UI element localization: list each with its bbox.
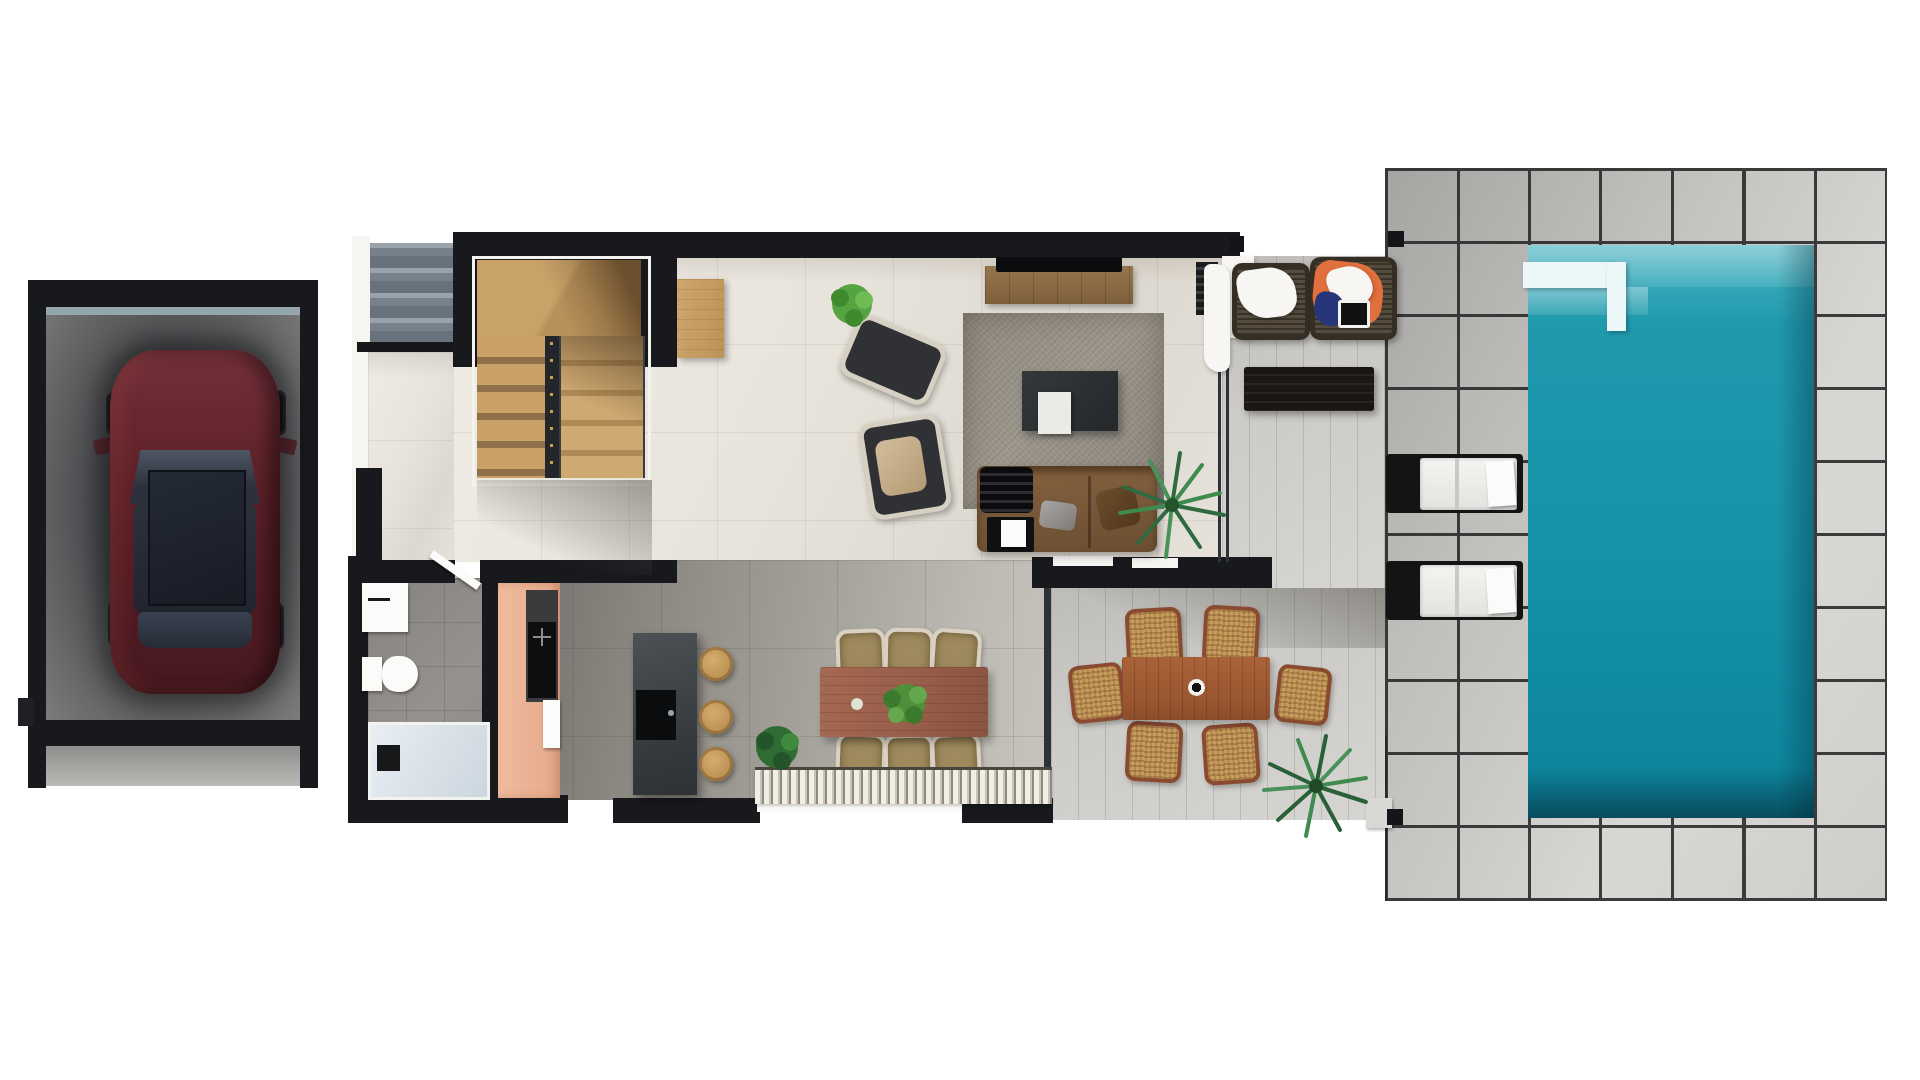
cooktop-control-2 bbox=[541, 628, 543, 646]
dining-table-sprig bbox=[851, 698, 863, 710]
palm-plant-deck bbox=[1256, 726, 1376, 846]
bar-stool-1 bbox=[699, 647, 733, 681]
pergola-post-2 bbox=[1388, 231, 1404, 247]
floor-plan-canvas bbox=[0, 0, 1920, 1080]
house-top-wall bbox=[453, 232, 1240, 258]
table-bowl bbox=[1188, 679, 1205, 696]
oak-sideboard bbox=[677, 279, 724, 358]
pergola-post-3 bbox=[1387, 809, 1403, 825]
bar-stool-3 bbox=[699, 747, 733, 781]
stair-flight-lower bbox=[559, 336, 645, 478]
shower-drain bbox=[377, 745, 400, 771]
swimming-pool bbox=[1528, 245, 1814, 818]
outdoor-chair-5 bbox=[1124, 721, 1183, 784]
pool-entry-step-horizontal bbox=[1523, 262, 1613, 288]
pool-shadow-bottom bbox=[1528, 768, 1814, 818]
outdoor-chair-4 bbox=[1273, 663, 1333, 726]
fridge bbox=[543, 700, 560, 748]
coffee-table-tray bbox=[1038, 392, 1071, 434]
sofa-black-throw bbox=[980, 467, 1033, 513]
car bbox=[108, 350, 282, 696]
garage-door-transom bbox=[46, 307, 302, 315]
stair-floor-shadow bbox=[477, 480, 652, 575]
stair-flight-upper bbox=[477, 336, 545, 478]
dining-table-plant bbox=[878, 675, 934, 731]
toilet-tank bbox=[362, 657, 382, 691]
car-rear-window bbox=[138, 612, 252, 648]
hall-stub-wall bbox=[356, 468, 382, 562]
slatted-coffee-table bbox=[1244, 367, 1374, 411]
pergola-post-1 bbox=[1229, 236, 1244, 252]
plant-near-stairs bbox=[824, 276, 880, 332]
tv bbox=[996, 257, 1122, 272]
outdoor-chair-6 bbox=[1201, 722, 1261, 786]
wall-cap-1 bbox=[1053, 556, 1113, 566]
sun-lounger-2-towel bbox=[1485, 567, 1516, 614]
lounge-chair-2-bag bbox=[1338, 300, 1370, 328]
outdoor-chair-3 bbox=[1067, 661, 1127, 724]
bar-stool-2 bbox=[699, 700, 733, 734]
utility-box bbox=[18, 698, 34, 726]
armchair-2-blanket bbox=[874, 435, 928, 498]
pool-shelf-corner bbox=[1528, 287, 1648, 315]
white-hanging-towel bbox=[1204, 264, 1230, 372]
stair-landing bbox=[477, 260, 641, 336]
bathroom-vanity bbox=[362, 583, 408, 632]
vanity-faucet bbox=[368, 598, 390, 601]
pool-shadow-right bbox=[1778, 245, 1814, 818]
stair-center-divider bbox=[545, 336, 559, 478]
palm-plant-living bbox=[1112, 445, 1232, 565]
bottom-wall-kitchen bbox=[613, 798, 760, 823]
sofa-seam bbox=[1088, 476, 1091, 548]
sun-lounger-1-hinge bbox=[1455, 458, 1459, 510]
garage-right-wall bbox=[300, 280, 318, 788]
toilet-bowl bbox=[382, 656, 418, 692]
pool-entry-step-vertical bbox=[1607, 262, 1626, 331]
garage-door bbox=[46, 720, 300, 746]
sun-lounger-1-towel bbox=[1485, 460, 1516, 507]
driveway-apron bbox=[46, 746, 300, 786]
car-sunroof bbox=[148, 470, 246, 606]
plant-near-dining bbox=[748, 718, 806, 776]
side-table-device bbox=[1001, 520, 1026, 547]
garage-top-beam bbox=[28, 280, 318, 307]
sofa-pillow-gray bbox=[1038, 500, 1077, 532]
island-faucet bbox=[668, 710, 674, 716]
entry-steps bbox=[370, 243, 453, 343]
sun-lounger-2-hinge bbox=[1455, 565, 1459, 617]
